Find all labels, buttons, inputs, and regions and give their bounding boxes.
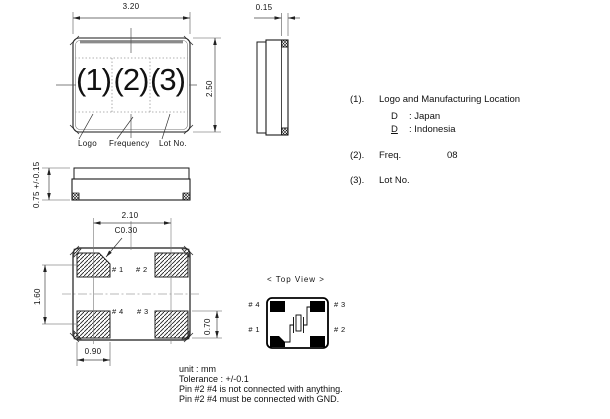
- legend-item1-text: Logo and Manufacturing Location: [379, 95, 520, 105]
- note-gnd-pins: Pin #2 #4 must be connected with GND.: [179, 395, 339, 405]
- legend-location1-code: D: [391, 112, 398, 122]
- dim-pitch-x-label: 2.10: [110, 212, 150, 221]
- pin3-pad: [310, 301, 325, 312]
- pin-2-label: # 2: [334, 326, 346, 334]
- legend-location1-name: : Japan: [409, 112, 440, 122]
- dim-pad-width-label: 0.90: [75, 348, 111, 357]
- crystal-symbol: [284, 307, 312, 342]
- bottom-view-drawing: [42, 218, 222, 366]
- lot-no-label: Lot No.: [159, 140, 187, 149]
- front-view-drawing: [42, 168, 190, 200]
- castellation-pad: [183, 193, 190, 200]
- pin4-pad: [270, 301, 285, 312]
- frequency-label: Frequency: [109, 140, 150, 149]
- dim-pitch-y-label: 1.60: [34, 288, 43, 305]
- dim-width-label: 3.20: [101, 3, 161, 12]
- dim-thickness-label: 0.75 +/-0.15: [33, 161, 42, 208]
- label-leaders: [79, 114, 170, 139]
- top-view-diagram-drawing: [267, 298, 328, 348]
- legend-item3-number: (3).: [350, 176, 364, 186]
- pad-4-label: # 4: [112, 308, 124, 316]
- top-view-diagram-title: < Top View >: [256, 276, 336, 285]
- pin-1-label: # 1: [238, 326, 260, 334]
- legend-item3-label: Lot No.: [379, 176, 410, 186]
- chamfer-callout-label: C0.30: [106, 227, 146, 236]
- drawing-sheet: 3.20 2.50 (1) (2) (3) Logo Frequency Lot…: [0, 0, 610, 419]
- logo-label: Logo: [78, 140, 97, 149]
- marking-area-3: (3): [147, 63, 188, 97]
- legend-location2-code: D: [391, 125, 398, 135]
- dim-height-label: 2.50: [206, 80, 215, 97]
- legend-freq-code-value: 08: [447, 151, 458, 161]
- marking-area-2: (2): [110, 63, 152, 97]
- pad-1-label: # 1: [112, 266, 124, 274]
- pin2-pad: [310, 336, 325, 347]
- castellation-pad: [72, 193, 79, 200]
- castellation-pad: [282, 40, 289, 47]
- pin-3-label: # 3: [334, 301, 346, 309]
- pin1-pad: [270, 336, 285, 347]
- dim-lid-label: 0.15: [244, 4, 284, 13]
- side-view-drawing: [254, 13, 300, 135]
- legend-location2-name: : Indonesia: [409, 125, 455, 135]
- legend-item1-number: (1).: [350, 95, 364, 105]
- legend-item2-number: (2).: [350, 151, 364, 161]
- pad-2: [155, 253, 188, 277]
- dim-pad-height-label: 0.70: [204, 318, 213, 335]
- legend-item2-label: Freq.: [379, 151, 401, 161]
- pad-3: [155, 311, 188, 338]
- pad-2-label: # 2: [136, 266, 148, 274]
- pin-4-label: # 4: [238, 301, 260, 309]
- pad-3-label: # 3: [137, 308, 149, 316]
- castellation-pad: [282, 128, 289, 135]
- marking-area-1: (1): [73, 63, 114, 97]
